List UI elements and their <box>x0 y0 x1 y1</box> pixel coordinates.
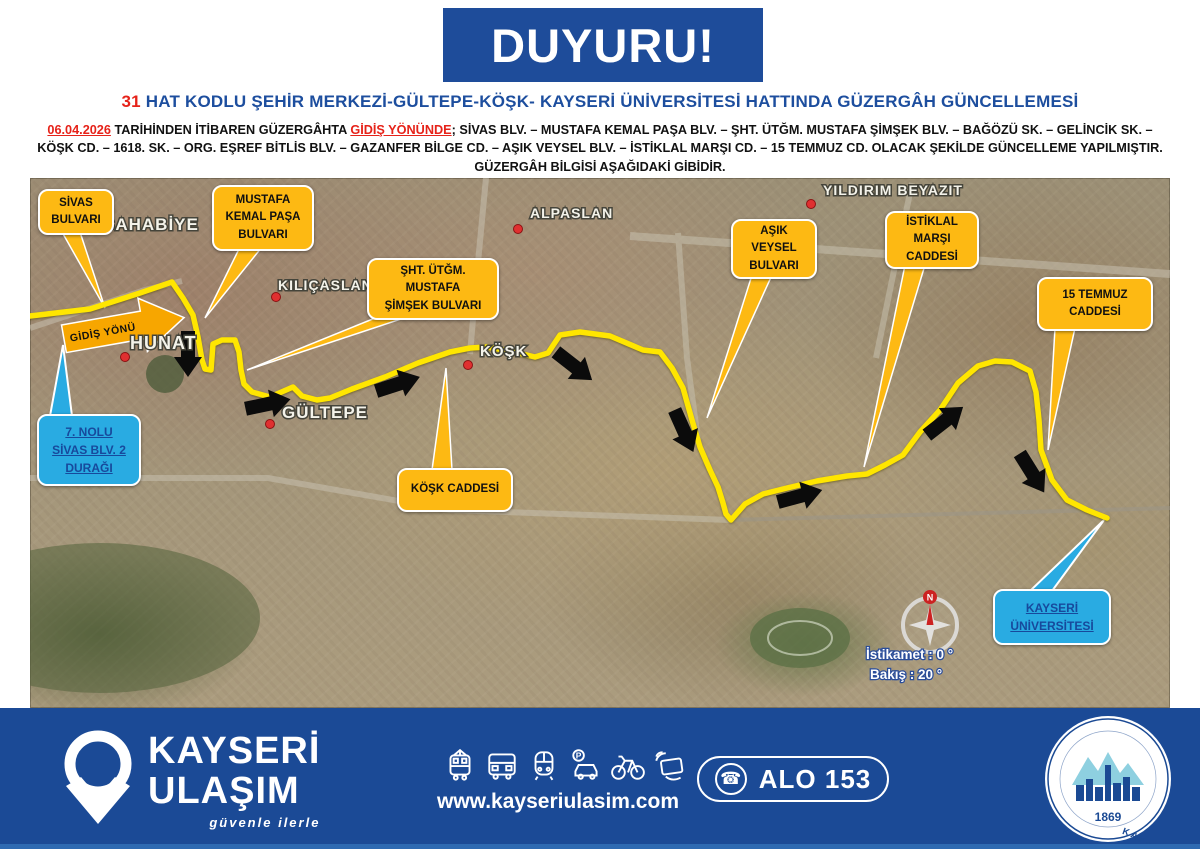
stop-label: KAYSERİ ÜNİVERSİTESİ <box>1010 599 1093 635</box>
callout-kosk-caddesi: KÖŞK CADDESİ <box>397 468 513 512</box>
callout-15-temmuz: 15 TEMMUZ CADDESİ <box>1037 277 1153 331</box>
stop-pointers <box>50 345 1104 591</box>
place-label-kilicaslan: KILIÇASLAN <box>278 277 373 293</box>
bus-route-line <box>30 282 1107 520</box>
callout-label: KÖŞK CADDESİ <box>411 481 499 498</box>
route-number: 31 <box>122 92 141 111</box>
compass-view-text: Bakış : 20 ° <box>870 667 942 682</box>
direction-highlight: GİDİŞ YÖNÜNDE <box>350 123 451 137</box>
car-parking-icon: P <box>568 748 604 782</box>
place-label-sahabiye: SAHABİYE <box>103 215 199 234</box>
website-text: www.kayseriulasim.com <box>424 790 692 814</box>
compass-heading-text: İstikamet : 0 ° <box>866 647 953 662</box>
announcement-poster: DUYURU! 31 HAT KODLU ŞEHİR MERKEZİ-GÜLTE… <box>0 0 1200 849</box>
contactless-card-icon <box>652 748 688 782</box>
effective-date: 06.04.2026 <box>47 123 111 137</box>
metro-icon <box>526 748 562 782</box>
brand-line1: KAYSERİ <box>148 732 320 772</box>
place-label-gultepe: GÜLTEPE <box>282 403 368 422</box>
announcement-banner: DUYURU! <box>443 8 763 82</box>
body-segment-1: TARİHİNDEN İTİBAREN GÜZERGÂHTA <box>111 123 350 137</box>
callout-label: 15 TEMMUZ CADDESİ <box>1062 287 1127 322</box>
seal-year: 1869 <box>1095 810 1122 824</box>
callout-sht-utgm-mustafa-simsek: ŞHT. ÜTĞM. MUSTAFA ŞİMŞEK BULVARI <box>367 258 499 320</box>
route-map: GİDİŞ YÖNÜ SAHABİYE KILIÇASLAN ALPASLAN … <box>30 178 1170 708</box>
bicycle-icon <box>610 748 646 782</box>
place-label-yildirim-beyazit: YILDIRIM BEYAZIT <box>823 182 963 198</box>
callout-label: ŞHT. ÜTĞM. MUSTAFA ŞİMŞEK BULVARI <box>385 263 482 315</box>
callout-asik-veysel: AŞIK VEYSEL BULVARI <box>731 219 817 279</box>
transport-icons: P <box>442 748 688 782</box>
kayseri-ulasim-pin-logo <box>52 724 144 832</box>
brand-line2: ULAŞIM <box>148 772 320 812</box>
callout-label: İSTİKLAL MARŞI CADDESİ <box>906 214 958 266</box>
callout-label: SİVAS BULVARI <box>51 195 100 230</box>
svg-text:P: P <box>576 751 582 761</box>
place-label-alpaslan: ALPASLAN <box>530 205 613 221</box>
callout-label: MUSTAFA KEMAL PAŞA BULVARI <box>226 192 301 244</box>
callout-stop-7-nolu-sivas: 7. NOLU SİVAS BLV. 2 DURAĞI <box>37 414 141 486</box>
green-areas <box>30 355 850 693</box>
route-direction-arrows <box>174 331 1056 515</box>
stop-label: 7. NOLU SİVAS BLV. 2 DURAĞI <box>52 423 126 477</box>
announcement-body: 06.04.2026 TARİHİNDEN İTİBAREN GÜZERGÂHT… <box>30 121 1170 176</box>
callout-sivas-bulvari: SİVAS BULVARI <box>38 189 114 235</box>
footer: KAYSERİ ULAŞIM güvenle ilerle P <box>0 708 1200 849</box>
callout-mustafa-kemal-pasa: MUSTAFA KEMAL PAŞA BULVARI <box>212 185 314 251</box>
place-label-kosk: KÖŞK <box>480 343 527 360</box>
municipality-seal: KAYSERİ BÜYÜKŞEHİR BELEDİYESİ 1869 <box>1042 713 1174 845</box>
brand-block: KAYSERİ ULAŞIM güvenle ilerle <box>148 732 320 830</box>
compass-rose: N İstikamet : 0 ° Bakış : 20 ° <box>866 590 957 682</box>
hotline-number: ALO 153 <box>759 764 872 795</box>
callout-label: AŞIK VEYSEL BULVARI <box>749 223 798 275</box>
tram-icon <box>442 748 478 782</box>
callout-kayseri-universitesi: KAYSERİ ÜNİVERSİTESİ <box>993 589 1111 645</box>
route-update-headline: 31 HAT KODLU ŞEHİR MERKEZİ-GÜLTEPE-KÖŞK-… <box>30 92 1170 112</box>
compass-north-label: N <box>927 593 934 603</box>
bus-icon <box>484 748 520 782</box>
hotline-pill: ☎ ALO 153 <box>697 756 889 802</box>
headline-text: HAT KODLU ŞEHİR MERKEZİ-GÜLTEPE-KÖŞK- KA… <box>141 92 1079 111</box>
place-label-hunat: HUNAT <box>130 333 197 353</box>
banner-text: DUYURU! <box>491 18 715 73</box>
callout-istiklal-marsi: İSTİKLAL MARŞI CADDESİ <box>885 211 979 269</box>
brand-tagline: güvenle ilerle <box>148 815 320 830</box>
phone-icon: ☎ <box>715 763 747 795</box>
